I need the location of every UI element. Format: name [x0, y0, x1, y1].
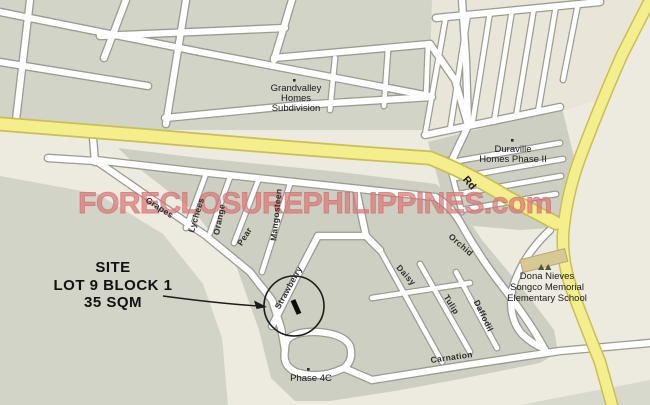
phase4c-label: Phase 4C [290, 373, 332, 384]
school-label-line3: Elementary School [507, 293, 587, 304]
duraville-label-line2: Homes Phase II [479, 154, 547, 165]
foreclosure-location-map: FORECLOSUREPHILIPPINES.com Grapes Lychee… [0, 0, 650, 405]
grandvalley-label-line3: Subdivision [272, 103, 321, 114]
grandvalley-marker-dot [293, 79, 296, 82]
area-bottom-right-sliver [520, 380, 650, 405]
site-callout-line1: SITE [95, 259, 130, 276]
duraville-marker-dot [511, 139, 514, 142]
phase4c-marker-dot [307, 368, 310, 371]
school-label-line1: Dona Nieves [520, 271, 575, 282]
map-canvas: FORECLOSUREPHILIPPINES.com Grapes Lychee… [0, 0, 650, 405]
school-label-line2: Songco Memorial [510, 282, 584, 293]
site-callout-line2: LOT 9 BLOCK 1 [53, 277, 172, 294]
site-callout-line3: 35 SQM [84, 294, 142, 311]
